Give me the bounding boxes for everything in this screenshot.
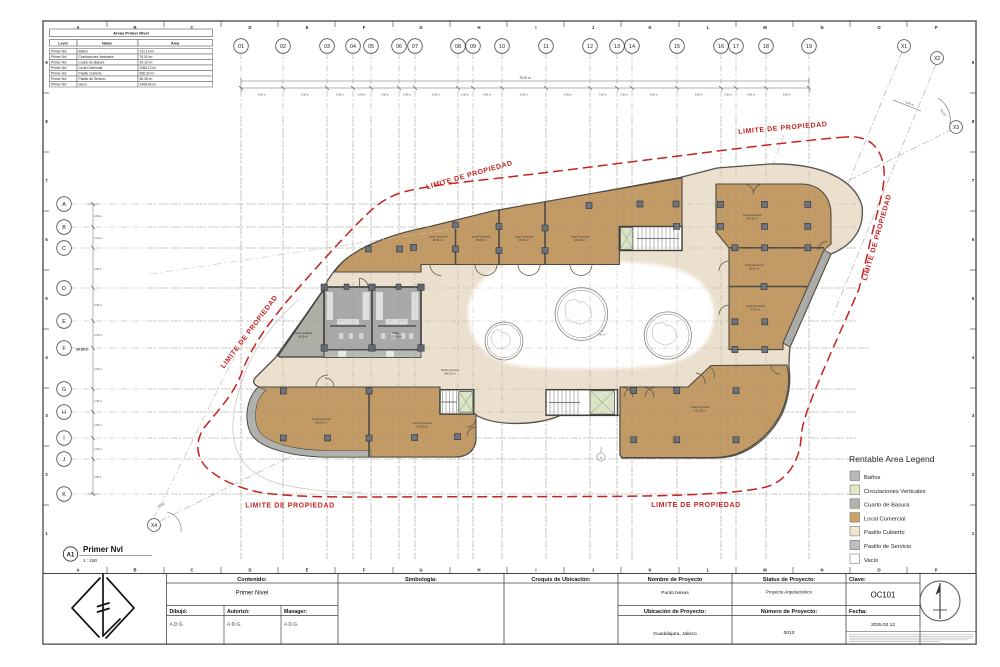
svg-text:Status de Proyecto:: Status de Proyecto: bbox=[763, 577, 816, 583]
svg-text:Fecha:: Fecha: bbox=[849, 609, 867, 615]
svg-text:78.00 m²: 78.00 m² bbox=[140, 55, 154, 59]
svg-text:Local Comercial: Local Comercial bbox=[571, 235, 590, 239]
svg-text:A.D.G.: A.D.G. bbox=[284, 622, 298, 628]
svg-text:Local Comercial: Local Comercial bbox=[472, 235, 491, 239]
svg-text:E: E bbox=[306, 568, 309, 573]
svg-text:X3: X3 bbox=[953, 125, 959, 131]
svg-text:H: H bbox=[477, 568, 480, 573]
svg-text:F: F bbox=[363, 25, 366, 30]
svg-text:1086.13 m²: 1086.13 m² bbox=[140, 66, 158, 70]
svg-text:Contenido:: Contenido: bbox=[237, 577, 267, 583]
svg-text:E: E bbox=[306, 25, 309, 30]
svg-text:Primer Nvl: Primer Nvl bbox=[51, 72, 67, 76]
svg-text:H: H bbox=[477, 25, 480, 30]
svg-text:04: 04 bbox=[350, 44, 356, 50]
svg-text:Pasillo Cubierto: Pasillo Cubierto bbox=[864, 530, 905, 536]
svg-text:76.00 m: 76.00 m bbox=[519, 76, 531, 80]
svg-text:Punto Nexus: Punto Nexus bbox=[661, 590, 689, 596]
svg-text:6.00 m: 6.00 m bbox=[783, 93, 791, 97]
svg-text:104.36 m²: 104.36 m² bbox=[574, 238, 586, 242]
svg-text:11: 11 bbox=[543, 44, 549, 50]
svg-text:Pasillo Cubierto: Pasillo Cubierto bbox=[79, 72, 102, 76]
svg-text:L: L bbox=[707, 568, 710, 573]
svg-text:95.53 m²: 95.53 m² bbox=[476, 238, 486, 242]
svg-text:2.10 m: 2.10 m bbox=[94, 447, 102, 451]
svg-text:07: 07 bbox=[412, 44, 418, 50]
svg-text:6.00 m: 6.00 m bbox=[301, 93, 309, 97]
svg-text:98.92 m²: 98.92 m² bbox=[433, 238, 443, 242]
svg-text:03: 03 bbox=[324, 44, 330, 50]
svg-text:Local Comercial: Local Comercial bbox=[745, 263, 764, 267]
svg-text:K: K bbox=[648, 568, 651, 573]
svg-text:90.01 m²: 90.01 m² bbox=[749, 267, 759, 271]
svg-text:C: C bbox=[190, 568, 193, 573]
svg-text:2.10 m: 2.10 m bbox=[94, 236, 102, 240]
svg-text:3.30 m: 3.30 m bbox=[94, 303, 102, 307]
svg-text:OC101: OC101 bbox=[871, 591, 896, 600]
svg-text:0013: 0013 bbox=[784, 630, 795, 636]
svg-text:LIMITE DE PROPIEDAD: LIMITE DE PROPIEDAD bbox=[245, 503, 335, 510]
svg-text:125.32 m²: 125.32 m² bbox=[315, 421, 327, 425]
svg-text:H: H bbox=[62, 410, 66, 416]
svg-text:Area: Area bbox=[171, 41, 180, 45]
svg-text:Local Comercial: Local Comercial bbox=[79, 66, 103, 70]
svg-text:Baños: Baños bbox=[864, 475, 881, 481]
svg-text:12: 12 bbox=[587, 44, 593, 50]
svg-text:N: N bbox=[820, 25, 823, 30]
svg-text:Circulaciones Verticales: Circulaciones Verticales bbox=[864, 489, 926, 495]
svg-text:17: 17 bbox=[733, 44, 739, 50]
svg-text:E: E bbox=[62, 319, 66, 325]
svg-text:34.10 m²: 34.10 m² bbox=[298, 335, 308, 338]
svg-text:2.60 m: 2.60 m bbox=[94, 423, 102, 427]
svg-text:4.00 m: 4.00 m bbox=[381, 93, 389, 97]
svg-text:Guadalajara, Jalisco: Guadalajara, Jalisco bbox=[653, 631, 697, 637]
svg-text:Primer Nvl: Primer Nvl bbox=[83, 545, 123, 554]
svg-text:K: K bbox=[62, 492, 66, 498]
svg-text:Local Comercial: Local Comercial bbox=[691, 405, 710, 409]
svg-text:Primer Nivel: Primer Nivel bbox=[236, 591, 269, 597]
svg-text:J: J bbox=[63, 457, 66, 463]
svg-text:15: 15 bbox=[674, 44, 680, 50]
svg-text:6.00 m: 6.00 m bbox=[432, 93, 440, 97]
svg-text:4.00 m: 4.00 m bbox=[747, 93, 755, 97]
svg-text:2.00 m: 2.00 m bbox=[461, 93, 469, 97]
svg-text:Dibujó:: Dibujó: bbox=[170, 609, 188, 615]
svg-text:06: 06 bbox=[396, 44, 402, 50]
svg-text:Ubicación de Proyecto:: Ubicación de Proyecto: bbox=[644, 609, 706, 615]
svg-text:Baños: Baños bbox=[79, 50, 89, 54]
svg-text:N: N bbox=[820, 568, 823, 573]
svg-text:2.00 m: 2.00 m bbox=[620, 93, 628, 97]
svg-text:140.43 m²: 140.43 m² bbox=[746, 217, 758, 221]
svg-text:110.09 m²: 110.09 m² bbox=[416, 425, 428, 429]
svg-text:B: B bbox=[133, 568, 136, 573]
svg-text:G: G bbox=[419, 25, 422, 30]
svg-text:Primer Nvl: Primer Nvl bbox=[51, 55, 67, 59]
svg-text:08: 08 bbox=[455, 44, 461, 50]
svg-text:608.32 m²: 608.32 m² bbox=[444, 372, 456, 376]
svg-text:4.10 m: 4.10 m bbox=[94, 367, 102, 371]
svg-text:D: D bbox=[62, 286, 66, 292]
svg-text:P: P bbox=[935, 25, 938, 30]
svg-text:56.26 m²: 56.26 m² bbox=[140, 77, 154, 81]
svg-text:1408.45 m²: 1408.45 m² bbox=[140, 83, 158, 87]
svg-text:A.D.G.: A.D.G. bbox=[170, 622, 184, 628]
svg-text:Areas Primer Nivel: Areas Primer Nivel bbox=[113, 31, 149, 36]
svg-text:Primer Nvl: Primer Nvl bbox=[51, 77, 67, 81]
svg-text:M: M bbox=[763, 568, 767, 573]
svg-text:16: 16 bbox=[718, 44, 724, 50]
svg-text:05: 05 bbox=[368, 44, 374, 50]
svg-text:Level: Level bbox=[58, 41, 67, 45]
svg-text:Cuarto de Basura: Cuarto de Basura bbox=[79, 61, 105, 65]
svg-text:C: C bbox=[62, 246, 66, 252]
svg-text:608.32 m²: 608.32 m² bbox=[140, 72, 156, 76]
svg-text:01: 01 bbox=[238, 44, 244, 50]
svg-text:Vacío: Vacío bbox=[864, 558, 878, 564]
svg-text:Name: Name bbox=[102, 41, 112, 45]
svg-text:2.00 m: 2.00 m bbox=[403, 93, 411, 97]
svg-text:6.00 m: 6.00 m bbox=[258, 93, 266, 97]
svg-text:A1: A1 bbox=[67, 552, 75, 558]
svg-text:Local Comercial: Local Comercial bbox=[413, 421, 432, 425]
svg-text:Cuarto de Basura: Cuarto de Basura bbox=[864, 503, 910, 509]
svg-text:4.00 m: 4.00 m bbox=[599, 93, 607, 97]
svg-text:Circulaciones Verticales: Circulaciones Verticales bbox=[79, 55, 114, 59]
svg-text:6.00 m: 6.00 m bbox=[520, 93, 528, 97]
svg-text:LIMITE DE PROPIEDAD: LIMITE DE PROPIEDAD bbox=[651, 502, 741, 509]
svg-text:D: D bbox=[248, 568, 251, 573]
svg-text:Simbología:: Simbología: bbox=[405, 577, 437, 583]
svg-text:A: A bbox=[62, 202, 66, 208]
svg-text:6.00 m: 6.00 m bbox=[650, 93, 658, 97]
svg-text:6.00 m: 6.00 m bbox=[564, 93, 572, 97]
svg-text:Autorizó:: Autorizó: bbox=[227, 609, 250, 615]
svg-text:77.61 m²: 77.61 m² bbox=[750, 308, 760, 312]
svg-text:Local Comercial: Local Comercial bbox=[515, 235, 534, 239]
svg-text:I: I bbox=[63, 436, 65, 442]
svg-text:X1: X1 bbox=[901, 44, 907, 50]
svg-text:A: A bbox=[76, 568, 79, 573]
svg-text:Rentable Area Legend: Rentable Area Legend bbox=[849, 454, 935, 464]
svg-text:2.30 m: 2.30 m bbox=[94, 214, 102, 218]
svg-text:L: L bbox=[707, 25, 710, 30]
svg-text:X2: X2 bbox=[934, 56, 940, 62]
svg-text:131.14 m²: 131.14 m² bbox=[140, 50, 156, 54]
svg-text:2.70 m: 2.70 m bbox=[94, 333, 102, 337]
svg-text:Nombre de Proyecto: Nombre de Proyecto bbox=[648, 577, 703, 583]
svg-text:09: 09 bbox=[470, 44, 476, 50]
svg-text:34.10 m²: 34.10 m² bbox=[140, 61, 154, 65]
svg-text:2.50 m: 2.50 m bbox=[358, 93, 366, 97]
svg-text:Local Comercial: Local Comercial bbox=[864, 516, 906, 522]
svg-text:4.00 m: 4.00 m bbox=[94, 267, 102, 271]
svg-text:131.14 m²: 131.14 m² bbox=[391, 335, 402, 338]
svg-text:19: 19 bbox=[806, 44, 812, 50]
svg-text:1 : 150: 1 : 150 bbox=[83, 558, 97, 563]
svg-text:Proyecto Arquitectónico: Proyecto Arquitectónico bbox=[766, 590, 813, 595]
svg-text:14: 14 bbox=[629, 44, 635, 50]
svg-text:Local Comercial: Local Comercial bbox=[743, 213, 762, 217]
svg-text:Pasillo de Servicio: Pasillo de Servicio bbox=[79, 77, 106, 81]
svg-text:M: M bbox=[763, 25, 767, 30]
svg-text:6.00 m: 6.00 m bbox=[695, 93, 703, 97]
svg-text:Clave:: Clave: bbox=[849, 577, 866, 583]
svg-text:2.00 m: 2.00 m bbox=[724, 93, 732, 97]
svg-text:F: F bbox=[363, 568, 366, 573]
svg-text:Local Comercial: Local Comercial bbox=[429, 235, 448, 239]
svg-text:A.D.G.: A.D.G. bbox=[227, 622, 241, 628]
svg-text:Primer Nvl: Primer Nvl bbox=[51, 50, 67, 54]
svg-text:10: 10 bbox=[499, 44, 505, 50]
svg-text:2025.02.12: 2025.02.12 bbox=[871, 622, 895, 628]
svg-text:02: 02 bbox=[280, 44, 286, 50]
svg-text:Pasillo Cubierto: Pasillo Cubierto bbox=[441, 368, 460, 372]
svg-text:Número de Proyecto:: Número de Proyecto: bbox=[761, 609, 818, 615]
svg-text:I: I bbox=[535, 25, 536, 30]
svg-text:Manager:: Manager: bbox=[284, 609, 307, 615]
svg-text:Croquis de Ubicación:: Croquis de Ubicación: bbox=[531, 577, 590, 583]
svg-text:Primer Nvl: Primer Nvl bbox=[51, 83, 67, 87]
svg-text:Local Comercial: Local Comercial bbox=[746, 304, 765, 308]
svg-text:Local Comercial: Local Comercial bbox=[312, 417, 331, 421]
svg-text:3.50 m: 3.50 m bbox=[336, 93, 344, 97]
svg-text:Pasillo de Servicio: Pasillo de Servicio bbox=[864, 544, 911, 550]
svg-text:99.35 m²: 99.35 m² bbox=[519, 238, 529, 242]
svg-text:G: G bbox=[419, 568, 422, 573]
svg-text:I: I bbox=[535, 568, 536, 573]
svg-text:B: B bbox=[62, 225, 66, 231]
svg-text:Vacío: Vacío bbox=[79, 83, 87, 87]
svg-text:3.50 m: 3.50 m bbox=[94, 475, 102, 479]
svg-text:18: 18 bbox=[763, 44, 769, 50]
svg-text:K: K bbox=[648, 25, 651, 30]
svg-text:4.00 m: 4.00 m bbox=[483, 93, 491, 97]
svg-text:13: 13 bbox=[614, 44, 620, 50]
svg-text:P: P bbox=[935, 568, 938, 573]
svg-text:Primer Nvl: Primer Nvl bbox=[51, 66, 67, 70]
svg-text:2.30 m: 2.30 m bbox=[94, 399, 102, 403]
svg-text:Primer Nvl: Primer Nvl bbox=[51, 61, 67, 65]
svg-text:G: G bbox=[62, 387, 66, 393]
svg-text:38.85 m: 38.85 m bbox=[76, 348, 88, 352]
svg-text:D: D bbox=[248, 25, 251, 30]
svg-text:X4: X4 bbox=[151, 523, 157, 529]
